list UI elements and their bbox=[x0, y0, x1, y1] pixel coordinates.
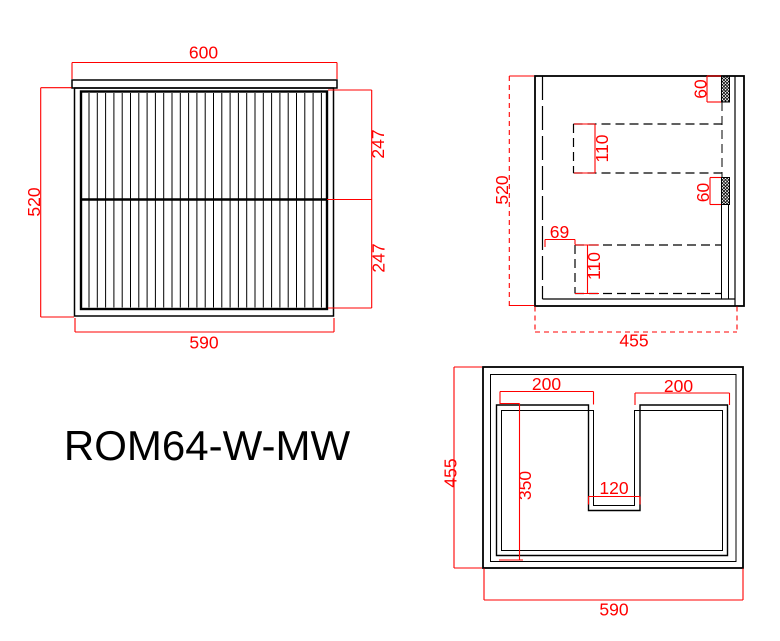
dim-label-590-plan: 590 bbox=[599, 600, 628, 620]
model-number: ROM64-W-MW bbox=[64, 422, 351, 469]
dim-label-350: 350 bbox=[515, 471, 535, 500]
dim-label-69: 69 bbox=[550, 222, 569, 242]
plan-dim-right-section: 200 bbox=[635, 376, 730, 405]
dim-label-520: 520 bbox=[24, 187, 44, 216]
dim-label-455-plan: 455 bbox=[441, 458, 461, 487]
dim-label-110-top: 110 bbox=[592, 134, 612, 162]
side-dim-setback: 69 bbox=[545, 222, 575, 247]
technical-drawing: 600 520 247 247 590 bbox=[0, 0, 780, 641]
hatch-pattern bbox=[722, 76, 730, 102]
front-countertop bbox=[72, 80, 337, 88]
dim-label-590-front: 590 bbox=[189, 333, 218, 353]
side-dim-height: 520 bbox=[492, 76, 534, 306]
dim-label-455-side: 455 bbox=[619, 331, 648, 351]
dim-label-110-bottom: 110 bbox=[584, 252, 604, 280]
plan-outer-box bbox=[483, 367, 743, 568]
front-dim-bottom-drawer: 247 bbox=[328, 200, 389, 309]
dim-label-520-side: 520 bbox=[492, 175, 512, 204]
plan-view: 455 200 200 350 120 bbox=[441, 367, 744, 620]
dim-label-247-bottom: 247 bbox=[369, 243, 389, 272]
side-dim-drawer2: 110 bbox=[575, 245, 604, 294]
drawing-canvas: 600 520 247 247 590 bbox=[0, 0, 780, 641]
front-dim-top-drawer: 247 bbox=[327, 90, 388, 200]
plan-dim-cutout-depth: 350 bbox=[499, 404, 535, 561]
front-dim-bottom-width: 590 bbox=[75, 318, 334, 353]
front-cabinet-body bbox=[75, 88, 334, 316]
side-dim-depth: 455 bbox=[535, 307, 737, 351]
front-dim-top-width: 600 bbox=[72, 43, 337, 80]
plan-dim-cutout-width: 120 bbox=[589, 478, 641, 505]
dim-label-120: 120 bbox=[599, 478, 628, 498]
dim-label-247-top: 247 bbox=[368, 129, 388, 158]
side-view: 520 60 110 60 69 bbox=[492, 76, 744, 351]
dim-label-200-left: 200 bbox=[532, 374, 561, 394]
dim-label-60-top: 60 bbox=[691, 79, 711, 99]
side-dim-mid-rail: 60 bbox=[693, 178, 721, 205]
plan-inner-box bbox=[491, 375, 737, 562]
front-dim-height: 520 bbox=[24, 88, 74, 317]
plan-dim-left-section: 200 bbox=[500, 374, 594, 405]
front-view: 600 520 247 247 590 bbox=[24, 43, 389, 353]
plan-dim-width: 590 bbox=[484, 569, 743, 620]
plan-dim-depth: 455 bbox=[441, 367, 483, 568]
side-dim-top-rail: 60 bbox=[691, 76, 722, 102]
hatch-pattern bbox=[722, 178, 730, 205]
dim-label-60-mid: 60 bbox=[693, 183, 713, 203]
side-dim-drawer1: 110 bbox=[574, 124, 612, 173]
dim-label-200-right: 200 bbox=[664, 376, 693, 396]
dim-label-600: 600 bbox=[189, 43, 218, 63]
side-mid-rail-hatch bbox=[722, 178, 730, 205]
